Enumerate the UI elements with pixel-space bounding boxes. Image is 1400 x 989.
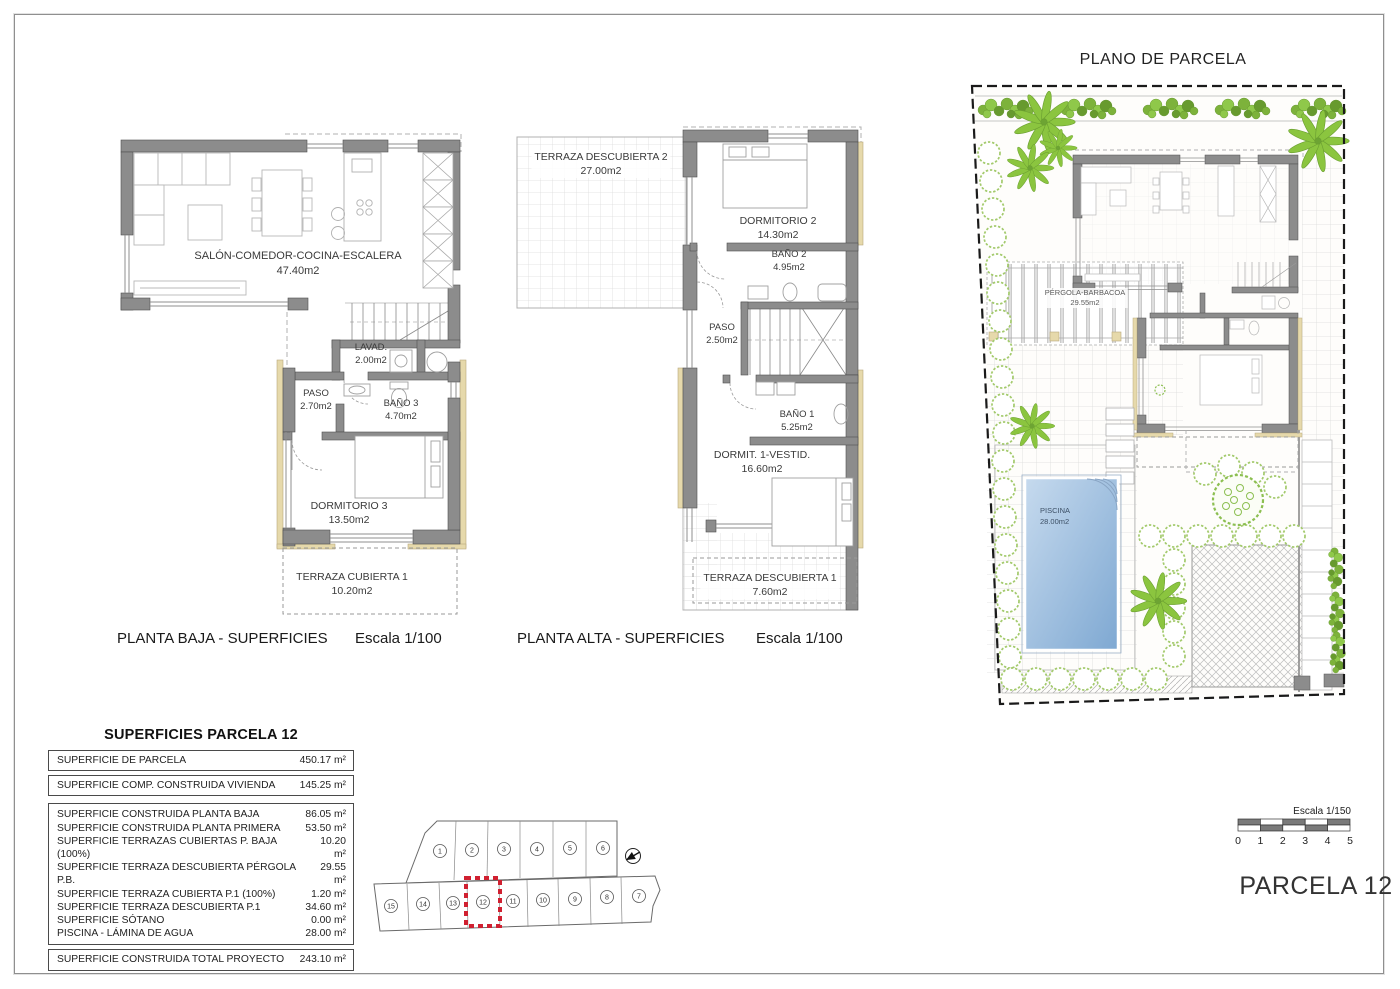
- room-area: 27.00m2: [534, 164, 667, 178]
- surfaces-table: SUPERFICIES PARCELA 12 SUPERFICIE DE PAR…: [48, 727, 354, 975]
- table-row: PISCINA - LÁMINA DE AGUA 28.00 m²: [57, 927, 346, 940]
- scale-tick-labels: 0 1 2 3 4 5: [1235, 835, 1353, 847]
- room-area: 4.70m2: [384, 411, 419, 424]
- svg-text:1: 1: [438, 849, 442, 856]
- table-row: SUPERFICIE CONSTRUIDA TOTAL PROYECTO 243…: [57, 953, 346, 966]
- svg-text:7: 7: [637, 894, 641, 901]
- bedroom3-bed: [355, 436, 443, 498]
- table-row: SUPERFICIE TERRAZA CUBIERTA P.1 (100%) 1…: [57, 888, 346, 901]
- room-label-paso-alta: PASO 2.50m2: [706, 322, 738, 348]
- table-row: SUPERFICIE TERRAZA DESCUBIERTA P.1 34.60…: [57, 901, 346, 914]
- svg-text:15: 15: [387, 904, 395, 911]
- room-name: TERRAZA CUBIERTA 1: [296, 570, 408, 584]
- row-value: 450.17 m²: [300, 754, 346, 767]
- table-row: SUPERFICIE TERRAZA DESCUBIERTA PÉRGOLA P…: [57, 861, 346, 887]
- table-row: SUPERFICIE CONSTRUIDA PLANTA PRIMERA 53.…: [57, 822, 346, 835]
- room-name: TERRAZA DESCUBIERTA 2: [534, 150, 667, 164]
- table-row: SUPERFICIE SÓTANO 0.00 m²: [57, 914, 346, 927]
- svg-text:6: 6: [601, 846, 605, 853]
- bathroom2-fixtures: [748, 283, 846, 301]
- planta-alta-scale: Escala 1/100: [756, 630, 843, 647]
- table-section-parcela: SUPERFICIE DE PARCELA 450.17 m²: [48, 750, 354, 771]
- row-value: 53.50 m²: [305, 822, 346, 835]
- row-label: SUPERFICIE TERRAZA DESCUBIERTA PÉRGOLA P…: [57, 861, 307, 887]
- room-area: 5.25m2: [780, 422, 815, 435]
- plot-location-map: 1 2 3 4 5 6 15 14 13 12 11 10 9 8 7: [368, 808, 668, 943]
- bedroom1-bed: [772, 478, 853, 546]
- room-name: BAÑO 3: [384, 398, 419, 411]
- row-value: 145.25 m²: [300, 779, 346, 792]
- row-value: 86.05 m²: [305, 808, 346, 821]
- stairs-upper: [748, 305, 846, 375]
- room-label-bano1: BAÑO 1 5.25m2: [780, 409, 815, 435]
- row-value: 10.20 m²: [306, 835, 346, 861]
- room-name: TERRAZA DESCUBIERTA 1: [703, 571, 836, 585]
- swimming-pool: [1022, 475, 1121, 653]
- room-name: SALÓN-COMEDOR-COCINA-ESCALERA: [194, 249, 401, 264]
- kitchen-cabinets: [423, 153, 453, 288]
- svg-text:1: 1: [1257, 835, 1263, 847]
- row-label: SUPERFICIE CONSTRUIDA PLANTA PRIMERA: [57, 822, 281, 835]
- room-label-dormitorio2: DORMITORIO 2 14.30m2: [740, 214, 817, 242]
- table-section-detail: SUPERFICIE CONSTRUIDA PLANTA BAJA 86.05 …: [48, 803, 354, 945]
- svg-text:8: 8: [605, 895, 609, 902]
- room-name: DORMIT. 1-VESTID.: [714, 448, 810, 462]
- table-row: SUPERFICIE COMP. CONSTRUIDA VIVIENDA 145…: [57, 779, 346, 792]
- table-section-vivienda: SUPERFICIE COMP. CONSTRUIDA VIVIENDA 145…: [48, 775, 354, 796]
- room-label-terraza-descubierta2: TERRAZA DESCUBIERTA 2 27.00m2: [531, 150, 670, 178]
- room-name: PASO: [706, 322, 738, 335]
- room-label-bano2: BAÑO 2 4.95m2: [772, 249, 807, 275]
- room-area: 14.30m2: [740, 228, 817, 242]
- room-name: PISCINA: [1040, 505, 1070, 516]
- row-value: 29.55 m²: [307, 861, 346, 887]
- planta-baja-scale: Escala 1/100: [355, 630, 442, 647]
- svg-text:10: 10: [539, 898, 547, 905]
- row-value: 0.00 m²: [311, 914, 346, 927]
- room-area: 28.00m2: [1040, 516, 1070, 527]
- stepping-stones: [1106, 408, 1134, 484]
- row-value: 28.00 m²: [305, 927, 346, 940]
- plano-parcela-drawing: [955, 75, 1355, 715]
- table-row: SUPERFICIE DE PARCELA 450.17 m²: [57, 754, 346, 767]
- room-area: 10.20m2: [296, 584, 408, 598]
- room-area: 29.55m2: [1045, 298, 1125, 308]
- room-label-bano3: BAÑO 3 4.70m2: [384, 398, 419, 424]
- svg-text:4: 4: [1325, 835, 1331, 847]
- kitchen-island: [332, 153, 382, 241]
- row-value: 34.60 m²: [305, 901, 346, 914]
- row-value: 1.20 m²: [311, 888, 346, 901]
- site-plan-title: PLANO DE PARCELA: [1080, 51, 1247, 69]
- room-name: BAÑO 1: [780, 409, 815, 422]
- room-label-piscina: PISCINA 28.00m2: [1040, 505, 1070, 528]
- stairs: [345, 303, 460, 340]
- room-label-terraza-descubierta1: TERRAZA DESCUBIERTA 1 7.60m2: [700, 571, 839, 599]
- svg-text:2: 2: [470, 848, 474, 855]
- svg-text:9: 9: [573, 897, 577, 904]
- svg-text:13: 13: [449, 901, 457, 908]
- surfaces-table-title: SUPERFICIES PARCELA 12: [48, 727, 354, 743]
- row-label: PISCINA - LÁMINA DE AGUA: [57, 927, 193, 940]
- room-area: 2.50m2: [706, 335, 738, 348]
- room-label-paso-baja: PASO 2.70m2: [300, 388, 332, 414]
- room-label-lavadero: LAVAD. 2.00m2: [355, 342, 387, 368]
- room-name: BAÑO 2: [772, 249, 807, 262]
- row-label: SUPERFICIE CONSTRUIDA TOTAL PROYECTO: [57, 953, 284, 966]
- room-name: LAVAD.: [355, 342, 387, 355]
- room-label-salon: SALÓN-COMEDOR-COCINA-ESCALERA 47.40m2: [194, 249, 401, 279]
- room-area: 2.70m2: [300, 401, 332, 414]
- room-label-dormitorio1: DORMIT. 1-VESTID. 16.60m2: [714, 448, 810, 476]
- svg-text:5: 5: [1347, 835, 1353, 847]
- row-label: SUPERFICIE SÓTANO: [57, 914, 164, 927]
- svg-text:4: 4: [535, 847, 539, 854]
- room-name: DORMITORIO 2: [740, 214, 817, 228]
- bedroom2-bed: [723, 144, 807, 208]
- room-area: 7.60m2: [703, 585, 836, 599]
- planta-baja-title: PLANTA BAJA - SUPERFICIES: [117, 630, 328, 647]
- svg-text:5: 5: [568, 846, 572, 853]
- plan-sheet: { "colors": { "wall_gray": "#8c8c8c", "b…: [0, 0, 1400, 989]
- svg-text:3: 3: [502, 847, 506, 854]
- svg-text:0: 0: [1235, 835, 1241, 847]
- planta-baja-drawing: [95, 125, 475, 625]
- planta-alta-title: PLANTA ALTA - SUPERFICIES: [517, 630, 725, 647]
- north-arrow-icon: [624, 849, 642, 864]
- room-area: 13.50m2: [311, 513, 388, 527]
- round-tree: [1213, 475, 1263, 525]
- room-name: PÉRGOLA-BARBACOA: [1045, 288, 1125, 298]
- room-label-terraza-cubierta1: TERRAZA CUBIERTA 1 10.20m2: [296, 570, 408, 598]
- row-label: SUPERFICIE TERRAZAS CUBIERTAS P. BAJA (1…: [57, 835, 306, 861]
- table-row: SUPERFICIE TERRAZAS CUBIERTAS P. BAJA (1…: [57, 835, 346, 861]
- room-area: 16.60m2: [714, 462, 810, 476]
- svg-text:3: 3: [1302, 835, 1308, 847]
- planta-alta-drawing: [505, 120, 870, 625]
- row-label: SUPERFICIE CONSTRUIDA PLANTA BAJA: [57, 808, 259, 821]
- table-section-total: SUPERFICIE CONSTRUIDA TOTAL PROYECTO 243…: [48, 949, 354, 970]
- row-label: SUPERFICIE COMP. CONSTRUIDA VIVIENDA: [57, 779, 275, 792]
- row-value: 243.10 m²: [300, 953, 346, 966]
- room-name: DORMITORIO 3: [311, 499, 388, 513]
- scale-bar-label: Escala 1/150: [1256, 806, 1351, 817]
- room-area: 2.00m2: [355, 355, 387, 368]
- room-label-pergola: PÉRGOLA-BARBACOA 29.55m2: [1042, 288, 1128, 308]
- row-label: SUPERFICIE TERRAZA DESCUBIERTA P.1: [57, 901, 261, 914]
- svg-text:11: 11: [509, 899, 516, 906]
- svg-text:2: 2: [1280, 835, 1286, 847]
- room-label-dormitorio3: DORMITORIO 3 13.50m2: [311, 499, 388, 527]
- room-name: PASO: [300, 388, 332, 401]
- row-label: SUPERFICIE DE PARCELA: [57, 754, 186, 767]
- parcela-number-title: PARCELA 12: [1239, 872, 1392, 901]
- svg-text:14: 14: [419, 902, 427, 909]
- room-area: 47.40m2: [194, 264, 401, 279]
- room-area: 4.95m2: [772, 262, 807, 275]
- row-label: SUPERFICIE TERRAZA CUBIERTA P.1 (100%): [57, 888, 275, 901]
- svg-text:12: 12: [479, 900, 487, 907]
- table-row: SUPERFICIE CONSTRUIDA PLANTA BAJA 86.05 …: [57, 808, 346, 821]
